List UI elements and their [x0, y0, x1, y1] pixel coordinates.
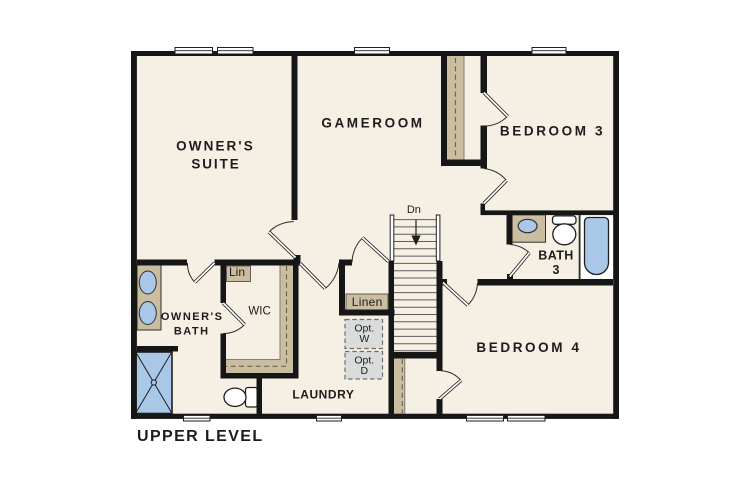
svg-text:W: W — [359, 333, 369, 345]
svg-text:BATH: BATH — [538, 249, 573, 263]
svg-text:BEDROOM 4: BEDROOM 4 — [476, 340, 581, 355]
svg-text:GAMEROOM: GAMEROOM — [321, 116, 424, 131]
svg-text:SUITE: SUITE — [191, 157, 240, 172]
svg-text:Lin: Lin — [229, 265, 245, 279]
svg-text:3: 3 — [553, 263, 560, 277]
svg-text:BATH: BATH — [174, 325, 210, 337]
svg-text:Linen: Linen — [352, 295, 383, 309]
svg-text:BEDROOM 3: BEDROOM 3 — [500, 123, 605, 138]
svg-text:UPPER LEVEL: UPPER LEVEL — [137, 428, 264, 445]
svg-text:WIC: WIC — [248, 306, 270, 318]
svg-text:LAUNDRY: LAUNDRY — [292, 387, 354, 401]
svg-text:OWNER'S: OWNER'S — [176, 139, 255, 154]
svg-text:D: D — [361, 365, 369, 377]
svg-text:OWNER'S: OWNER'S — [161, 311, 224, 323]
svg-text:Dn: Dn — [407, 204, 421, 216]
